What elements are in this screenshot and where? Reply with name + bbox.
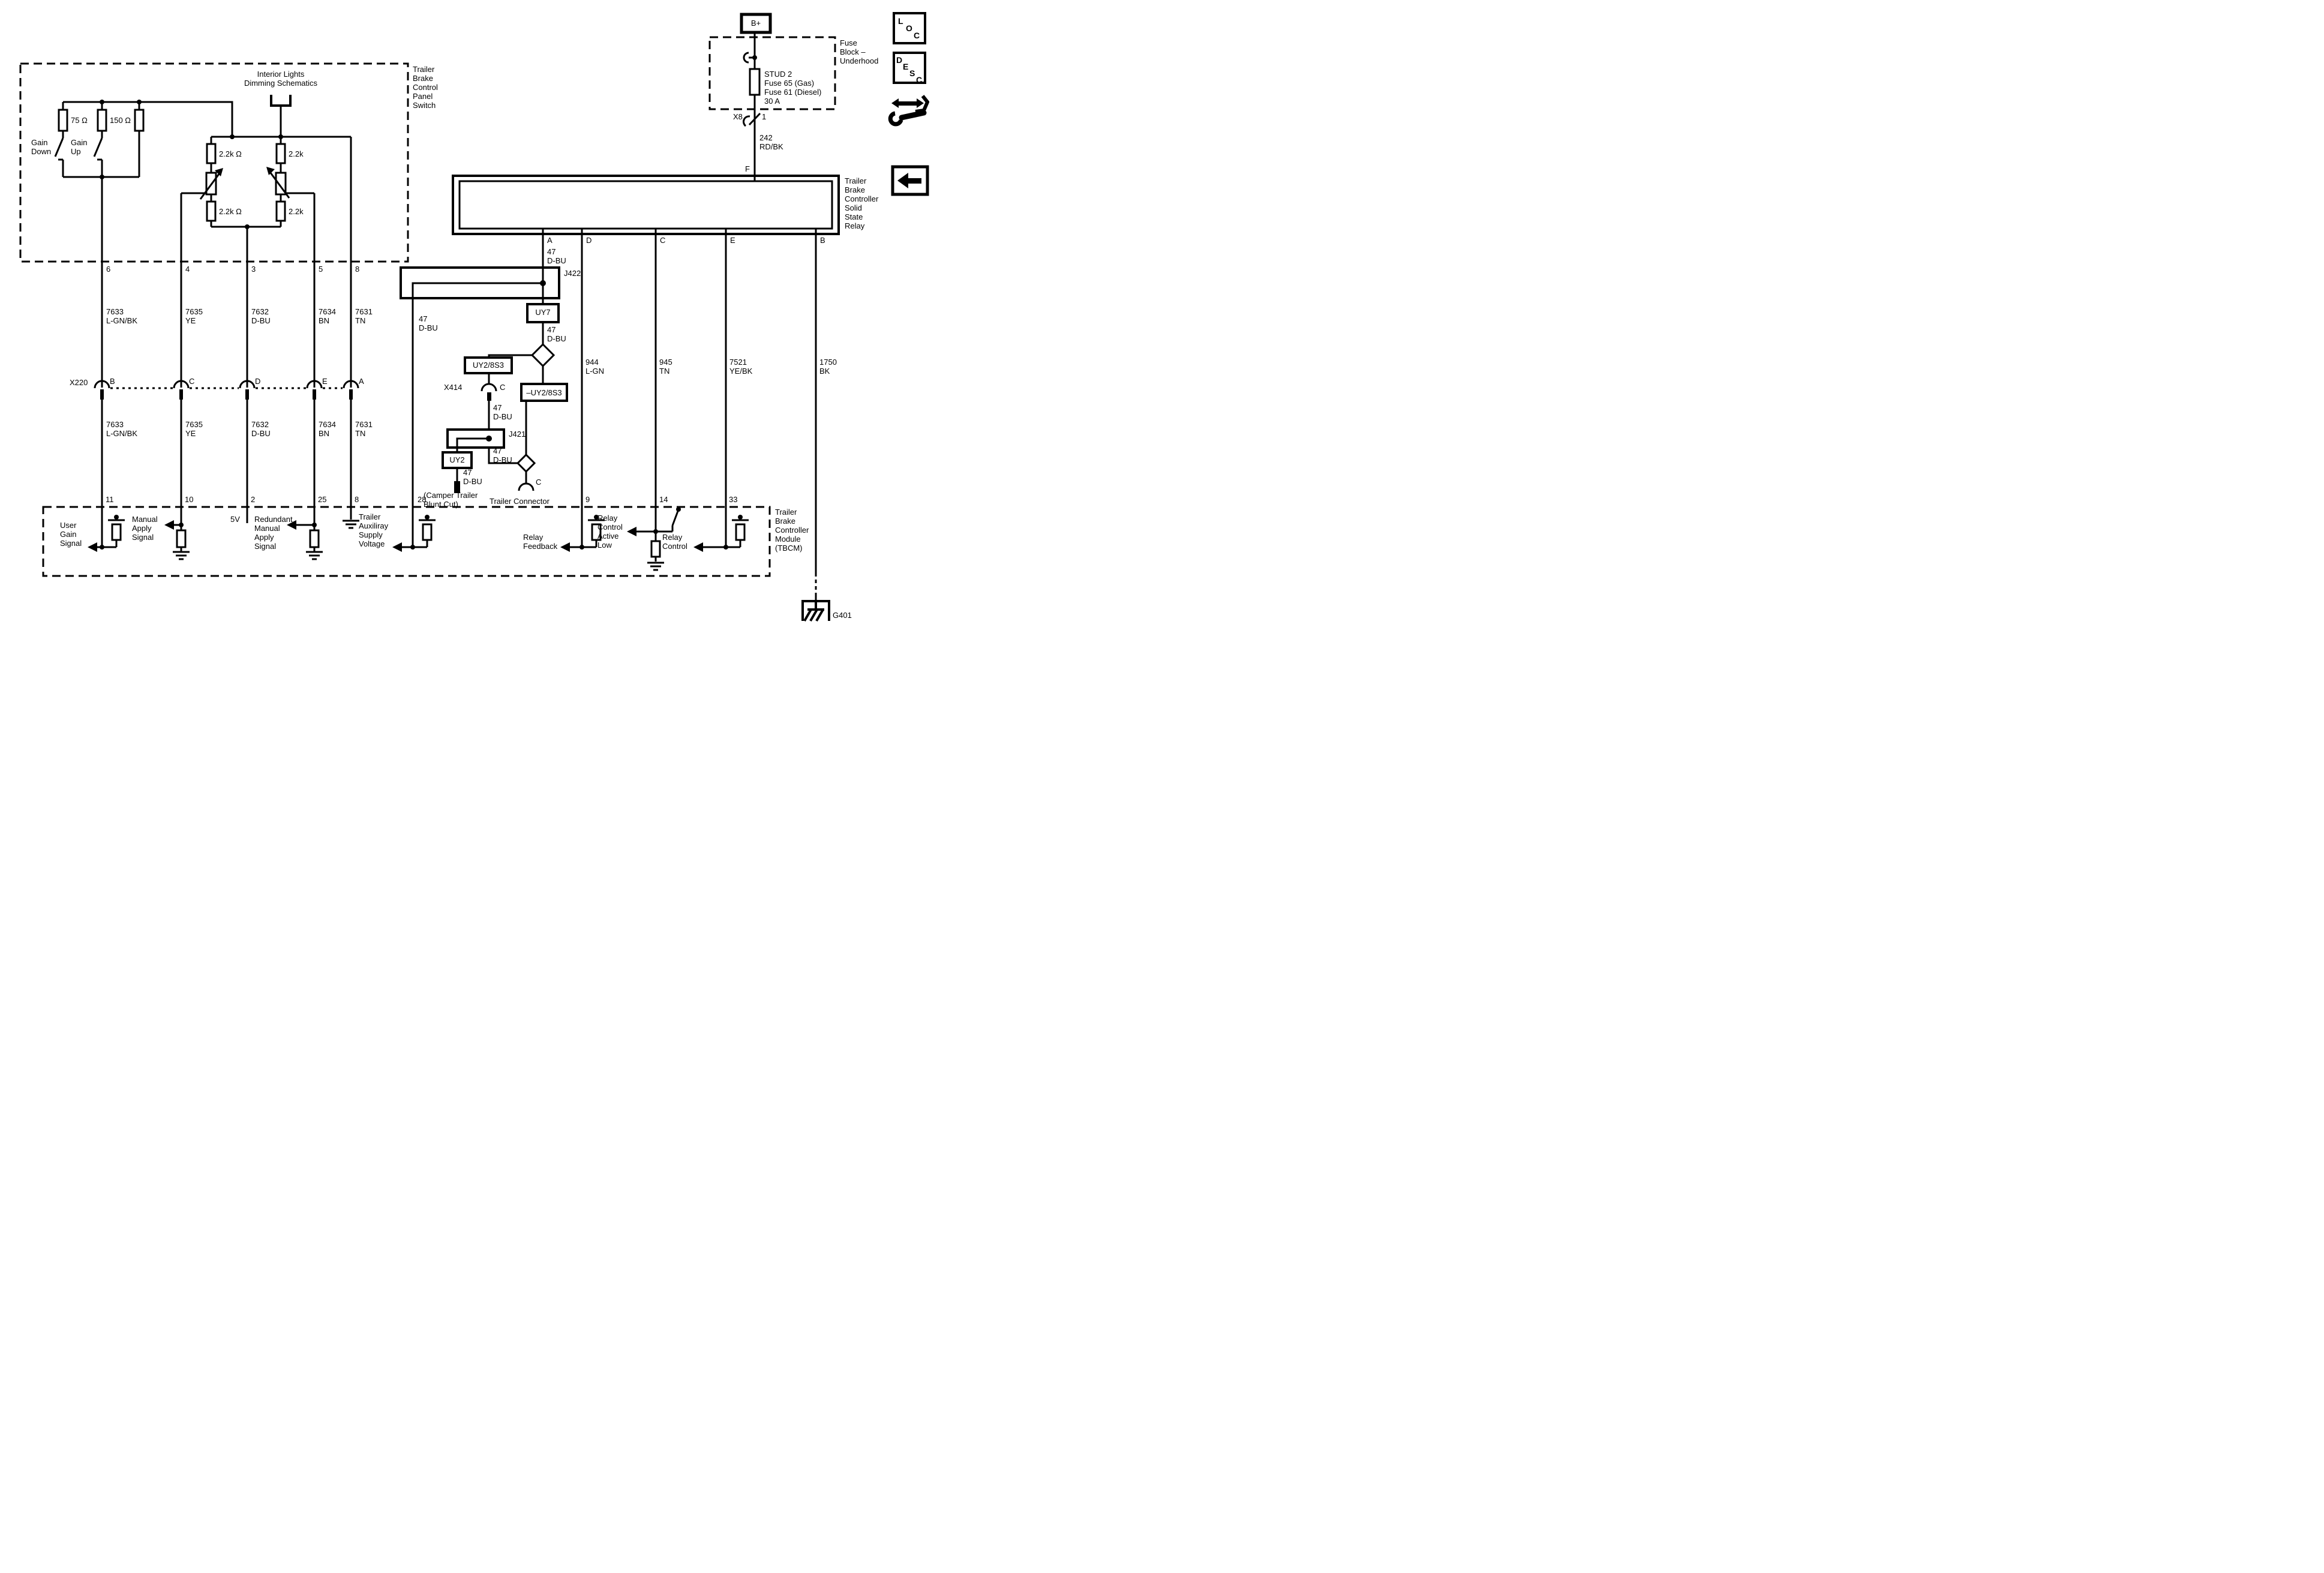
gain-down-label: Gain Down: [31, 138, 51, 156]
relay-control-low-ground: [647, 557, 664, 570]
diamond-connector-2: [518, 455, 535, 472]
five-v-label: 5V: [230, 515, 240, 524]
wire-47-main: 47 D-BU: [493, 446, 512, 464]
desc-letter-c[interactable]: C: [916, 75, 922, 85]
relay-pin-f: F: [745, 164, 750, 173]
wire-47-pin28: 47 D-BU: [419, 314, 438, 332]
wire-7635-upper: 7635 YE: [185, 307, 203, 325]
relay-feedback-label: Relay Feedback: [523, 533, 557, 551]
relay-pin-d: D: [586, 236, 591, 245]
wire-47-uy7: 47 D-BU: [547, 325, 566, 343]
x220-connector-arcs: [95, 381, 358, 388]
bplus-label: B+: [741, 19, 770, 28]
wire-7634-upper: 7634 BN: [319, 307, 336, 325]
top-pin-8: 8: [355, 265, 359, 274]
uy7-label: UY7: [527, 308, 559, 317]
nav-icons[interactable]: [890, 13, 927, 194]
wire-7631-upper: 7631 TN: [355, 307, 373, 325]
uy2-label: UY2: [443, 455, 472, 464]
relay-feedback-arrow: [560, 542, 570, 552]
manual-apply-arrow: [164, 520, 174, 530]
user-gain-arrow: [88, 542, 97, 552]
interior-lights-connector: [271, 95, 290, 106]
j422-label: J422: [564, 269, 581, 278]
redundant-resistor: [310, 530, 319, 547]
top-pin-4: 4: [185, 265, 190, 274]
tbcm-pin-11: 11: [106, 495, 114, 504]
fuse-block-label: Fuse Block – Underhood: [840, 38, 878, 65]
resistor-3: [135, 110, 143, 131]
pin8-ground: [343, 521, 359, 528]
tbcm-pin-14: 14: [659, 495, 668, 504]
wire-47-a: 47 D-BU: [547, 247, 566, 265]
panel-switch-box-label: Trailer Brake Control Panel Switch: [413, 65, 438, 110]
wire-7633-lower: 7633 L-GN/BK: [106, 420, 137, 438]
wire-7634-lower: 7634 BN: [319, 420, 336, 438]
redundant-manual-apply-label: Redundant Manual Apply Signal: [254, 515, 293, 551]
relay-control-resistor: [736, 524, 744, 540]
top-pin-5: 5: [319, 265, 323, 274]
wire-945-label: 945 TN: [659, 358, 672, 376]
tbcm-pin-8: 8: [355, 495, 359, 504]
wire-7632-lower: 7632 D-BU: [251, 420, 271, 438]
signal-arrows: [88, 167, 703, 552]
resistor-22k-3: [207, 202, 215, 221]
relay-inner-box: [460, 181, 832, 229]
x414-label: X414: [444, 383, 462, 392]
user-gain-resistor: [112, 524, 121, 540]
tbcm-box-label: Trailer Brake Controller Module (TBCM): [775, 508, 809, 553]
r22k-4-label: 2.2k: [289, 207, 304, 216]
manual-apply-signal-label: Manual Apply Signal: [132, 515, 158, 542]
x414-pin-c: C: [500, 383, 505, 392]
relay-box-label: Trailer Brake Controller Solid State Rel…: [845, 176, 878, 230]
g401-ground-symbol: [803, 601, 829, 621]
trailer-aux-supply-label: Trailer Auxiliray Supply Voltage: [359, 512, 388, 548]
minus-uy2-8s3-label: –UY2/8S3: [521, 388, 567, 397]
x220-label: X220: [70, 378, 88, 387]
relay-control-low-resistor: [651, 541, 660, 557]
trailer-aux-arrow: [392, 542, 402, 552]
diamond-connector-1: [532, 344, 554, 366]
gain-top-rail: [63, 102, 232, 137]
wiring-diagram: Interior Lights Dimming Schematics Trail…: [0, 0, 929, 629]
loc-letter-l[interactable]: L: [898, 16, 903, 26]
wire-47-x414: 47 D-BU: [493, 403, 512, 421]
x8-connector-symbol: [743, 113, 760, 126]
camper-blunt-cut-label: (Camper Trailer Blunt Cut): [424, 491, 478, 509]
manual-apply-ground: [173, 552, 190, 559]
wire-7631-lower: 7631 TN: [355, 420, 373, 438]
relay-control-label: Relay Control: [662, 533, 687, 551]
relay-control-active-low-label: Relay Control Active Low: [597, 514, 623, 550]
wire-7633-upper: 7633 L-GN/BK: [106, 307, 137, 325]
user-gain-signal-label: User Gain Signal: [60, 521, 82, 548]
gain-up-label: Gain Up: [71, 138, 87, 156]
tbcm-pin-10: 10: [185, 495, 193, 504]
redundant-ground: [306, 552, 323, 559]
resistor-22k-2: [277, 144, 285, 163]
wire-944-label: 944 L-GN: [585, 358, 604, 376]
resistor-150: [98, 110, 106, 131]
x220-pin-c: C: [189, 377, 194, 386]
junction-dots: [100, 55, 757, 550]
manual-apply-resistor: [177, 530, 185, 547]
tbcm-pin-25: 25: [318, 495, 326, 504]
uy2-8s3-label: UY2/8S3: [465, 361, 512, 370]
back-arrow-button[interactable]: [893, 167, 927, 194]
tbcm-pin-33: 33: [729, 495, 737, 504]
resistor-75: [59, 110, 67, 131]
wire-47-uy2: 47 D-BU: [463, 468, 482, 486]
desc-letter-e[interactable]: E: [903, 62, 908, 71]
desc-letter-d[interactable]: D: [896, 55, 902, 65]
interior-lights-title: Interior Lights Dimming Schematics: [216, 70, 346, 88]
x8-pin-label: 1: [762, 112, 766, 121]
wire-1750-label: 1750 BK: [819, 358, 837, 376]
resistor-150-label: 150 Ω: [110, 116, 131, 125]
x8-label: X8: [733, 112, 743, 121]
r22k-3-label: 2.2k Ω: [219, 207, 242, 216]
trailer-connector-pin-c: C: [536, 478, 541, 487]
relay-pin-e: E: [730, 236, 735, 245]
r22k-1-label: 2.2k Ω: [219, 149, 242, 158]
r22k-2-label: 2.2k: [289, 149, 304, 158]
uy2-branch-wire: [457, 439, 489, 452]
tbcm-pin-9: 9: [585, 495, 590, 504]
tbcm-pin-2: 2: [251, 495, 255, 504]
relay-pin-b: B: [820, 236, 825, 245]
wire-7632-upper: 7632 D-BU: [251, 307, 271, 325]
j421-label: J421: [509, 430, 526, 439]
relay-pin-c: C: [660, 236, 665, 245]
relay-outer-box: [453, 176, 839, 234]
trailer-connector-arc: [519, 484, 533, 491]
g401-label: G401: [833, 611, 852, 620]
wire-7635-lower: 7635 YE: [185, 420, 203, 438]
fuse-label: STUD 2 Fuse 65 (Gas) Fuse 61 (Diesel) 30…: [764, 70, 821, 106]
wire-7521-label: 7521 YE/BK: [729, 358, 752, 376]
trailer-connector-label: Trailer Connector: [490, 497, 550, 506]
desc-letter-s[interactable]: S: [909, 68, 915, 78]
x220-pin-d: D: [255, 377, 260, 386]
top-pin-3: 3: [251, 265, 256, 274]
resistor-75-label: 75 Ω: [71, 116, 88, 125]
x220-terminal-ticks: [100, 389, 491, 493]
connector-view-icon[interactable]: [890, 96, 927, 124]
resistor-22k-1: [207, 144, 215, 163]
wire-242-label: 242 RD/BK: [759, 133, 783, 151]
x220-pin-b: B: [110, 377, 115, 386]
relay-control-low-arrow: [627, 527, 636, 536]
relay-control-arrow: [693, 542, 703, 552]
relay-pin-a: A: [547, 236, 553, 245]
x414-terminal-tick: [487, 392, 491, 401]
trailer-aux-resistor: [423, 524, 431, 540]
x220-pin-a: A: [359, 377, 364, 386]
loc-letter-c[interactable]: C: [914, 31, 920, 40]
x414-connector-arc: [482, 384, 496, 391]
fuse-symbol: [750, 69, 759, 95]
top-pin-6: 6: [106, 265, 110, 274]
x220-pin-e: E: [322, 377, 328, 386]
loc-letter-o[interactable]: O: [906, 23, 912, 33]
resistor-22k-4: [277, 202, 285, 221]
